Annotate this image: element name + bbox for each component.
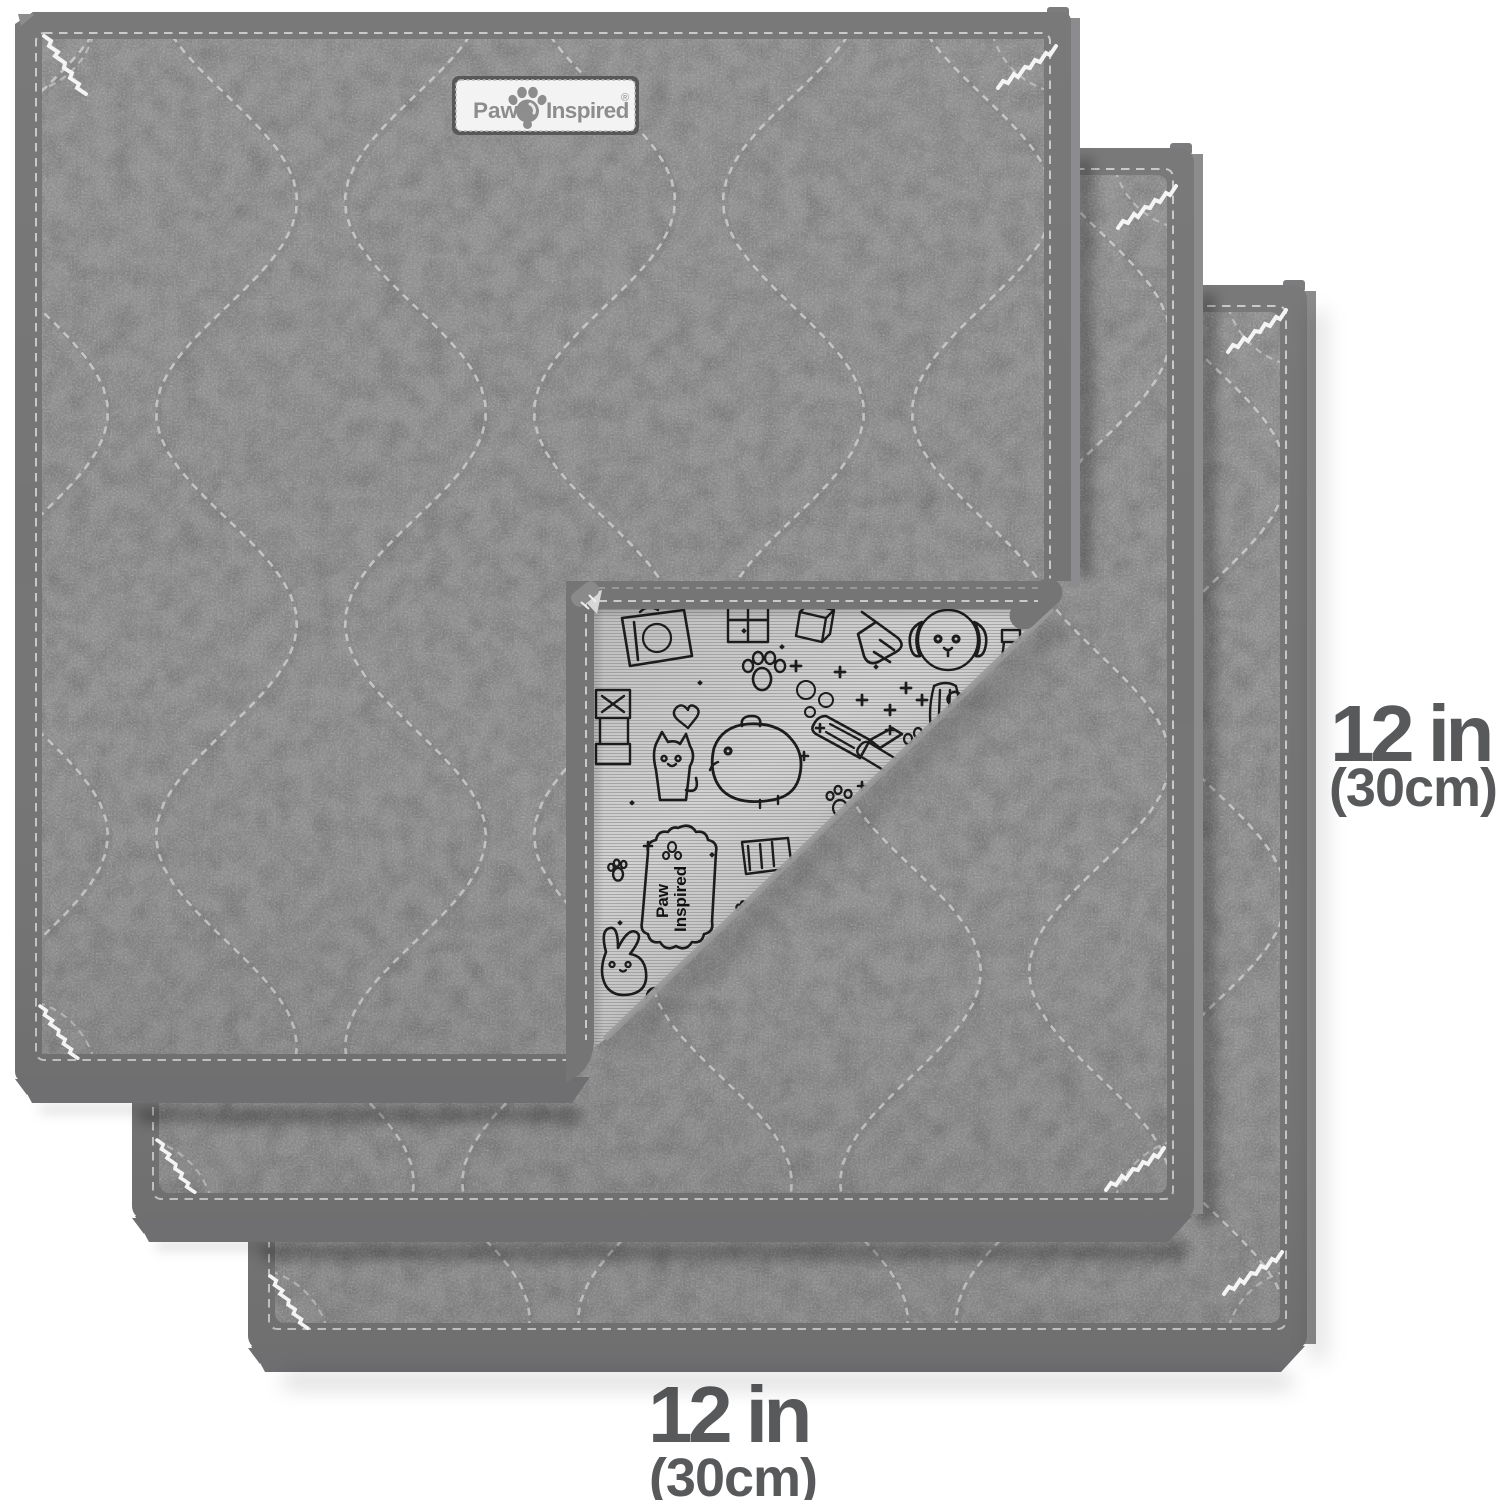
svg-text:(30cm): (30cm)	[649, 1448, 817, 1500]
svg-text:Inspired: Inspired	[546, 98, 629, 123]
svg-text:®: ®	[621, 92, 629, 104]
svg-text:(30cm): (30cm)	[1329, 758, 1497, 818]
